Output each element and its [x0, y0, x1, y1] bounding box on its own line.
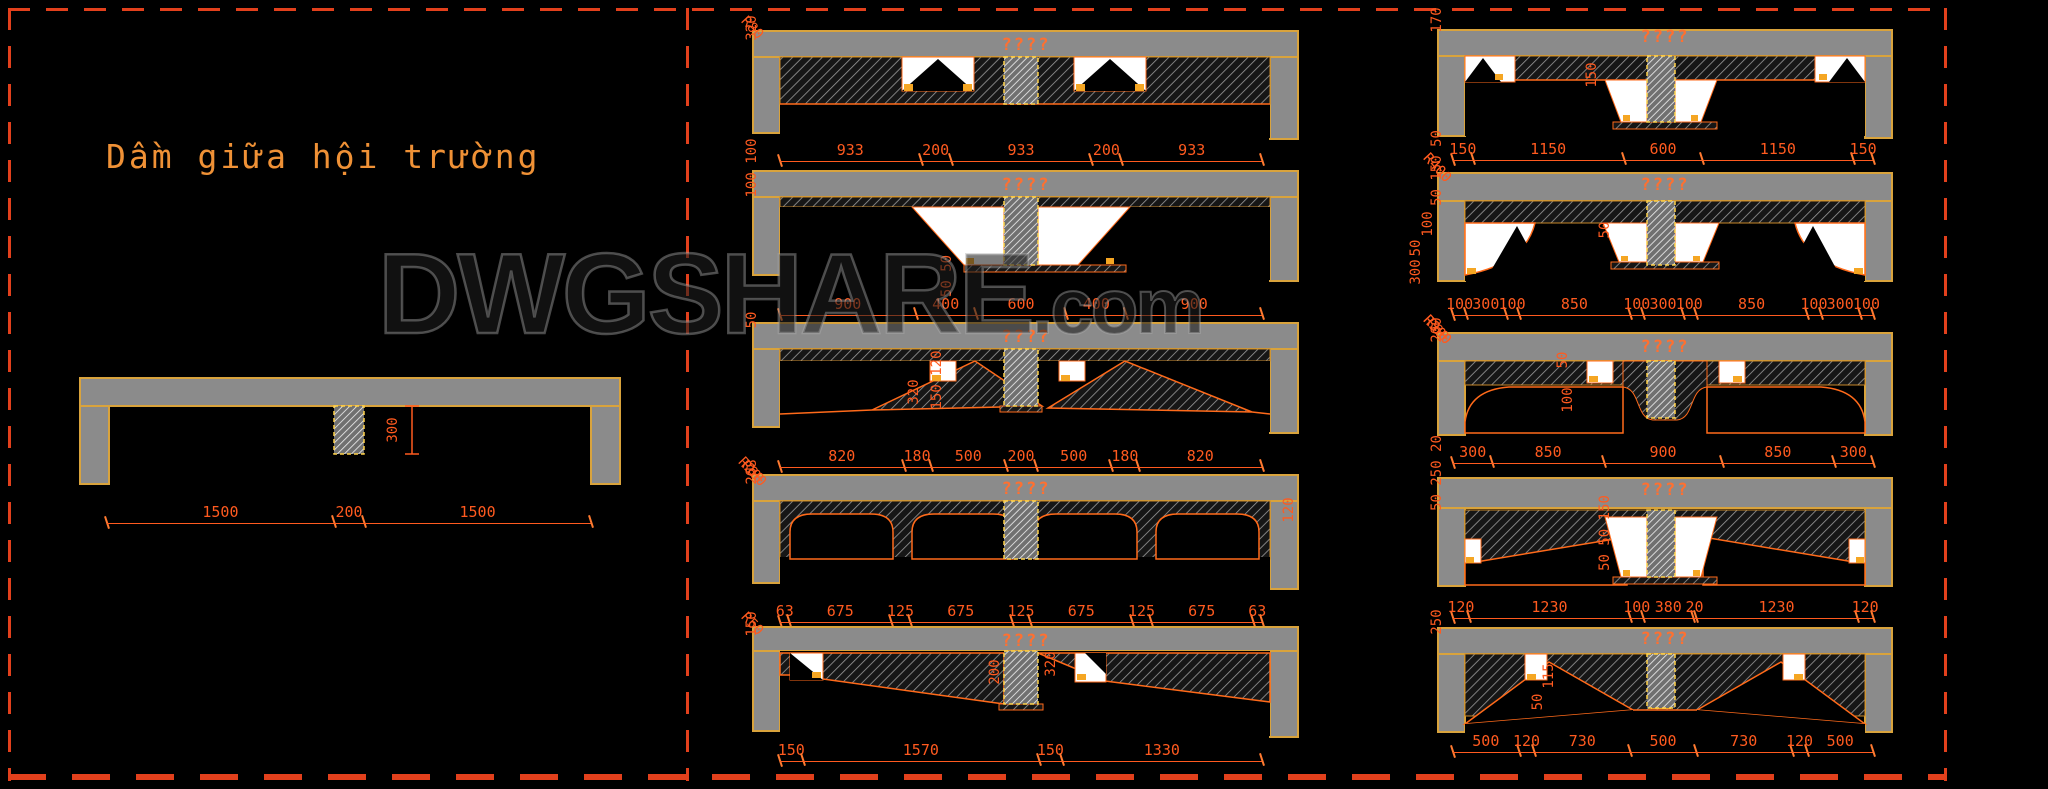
- dim-value: 100: [1807, 290, 1820, 316]
- vertical-dim-label: 120: [1282, 497, 1296, 522]
- dimension-row: 300850900850300: [1453, 438, 1873, 464]
- dimension-row: 820180500200500180820: [780, 442, 1262, 468]
- dim-value: 820: [1138, 442, 1262, 468]
- dim-value: 675: [1151, 597, 1253, 623]
- dim-value: 300: [1834, 438, 1873, 464]
- dim-value: 500: [931, 442, 1006, 468]
- dim-value: 200: [921, 136, 951, 162]
- dim-value: 933: [951, 136, 1092, 162]
- dim-value: 850: [1696, 290, 1808, 316]
- detail-section-r5: ???? 115 50 250 500120730500730120500: [1437, 622, 1893, 780]
- vertical-dim-label: 50: [745, 312, 759, 329]
- dim-value: 500: [1630, 727, 1696, 753]
- detail-caption: ????: [752, 175, 1300, 195]
- detail-section-m1: ???? 320 R80 933200933200933: [752, 28, 1300, 168]
- dim-value: 200: [1006, 442, 1036, 468]
- vertical-dim-label: 100: [1421, 211, 1435, 236]
- dim-value: 63: [1253, 597, 1262, 623]
- sheet-border-left: [8, 8, 11, 781]
- vertical-dim-label: 150 120: [930, 350, 944, 409]
- dim-value: 1150: [1473, 135, 1624, 161]
- dim-value: 730: [1534, 727, 1630, 753]
- detail-caption: ????: [1437, 629, 1893, 649]
- dim-value: 933: [1121, 136, 1262, 162]
- dim-value: 1570: [803, 736, 1039, 762]
- detail-section-m5: ???? 200 320 150 R50 15015701501330: [752, 624, 1300, 779]
- detail-caption: ????: [1437, 480, 1893, 500]
- dim-value: 820: [780, 442, 904, 468]
- dim-value: 1330: [1062, 736, 1262, 762]
- dim-value: 1150: [1702, 135, 1853, 161]
- dim-value: 150: [1853, 135, 1873, 161]
- vertical-dim-label: 50 250 20: [1430, 435, 1444, 511]
- dim-value: 850: [1722, 438, 1834, 464]
- detail-caption: ????: [1437, 27, 1893, 47]
- dim-value: 675: [910, 597, 1012, 623]
- dimension-row: 933200933200933: [780, 136, 1262, 162]
- dim-value: 100: [1453, 290, 1466, 316]
- detail-caption: ????: [752, 631, 1300, 651]
- dim-value: 180: [1111, 442, 1138, 468]
- dim-value: 120: [1453, 593, 1469, 619]
- dimension-row: 15002001500: [107, 498, 591, 524]
- dimension-row: 15015701501330: [780, 736, 1262, 762]
- dim-value: 500: [1036, 442, 1111, 468]
- dim-value: 900: [1604, 438, 1722, 464]
- detail-caption: ????: [752, 479, 1300, 499]
- dim-value: 730: [1696, 727, 1792, 753]
- detail-section-m4: ???? 120 268 R200 R80 636751256751256751…: [752, 472, 1300, 626]
- detail-section-r4: ???? 50 50 150 50 250 20 120123010038020…: [1437, 473, 1893, 625]
- dimension-row: 15011506001150150: [1453, 135, 1873, 161]
- dim-value: 200: [1091, 136, 1121, 162]
- dimension-row: 6367512567512567512567563: [780, 597, 1262, 623]
- dim-value: 125: [1132, 597, 1151, 623]
- vertical-dim-label: 50: [1531, 694, 1545, 711]
- dim-value: 200: [334, 498, 364, 524]
- dimension-row: 500120730500730120500: [1453, 727, 1873, 753]
- dim-value: 100: [1506, 290, 1519, 316]
- dim-value: 300: [1453, 438, 1492, 464]
- dim-value: 120: [1857, 593, 1873, 619]
- sheet-border-right: [1944, 8, 1947, 781]
- vertical-dim-label: 50 50 150: [1598, 495, 1612, 571]
- dim-value: 500: [1453, 727, 1519, 753]
- dim-value: 850: [1519, 290, 1631, 316]
- dimension-row: 100300100850100300100850100300100: [1453, 290, 1873, 316]
- dim-value: 850: [1492, 438, 1604, 464]
- vertical-dim-label: 320: [1044, 651, 1058, 676]
- dim-value: 1500: [364, 498, 591, 524]
- vertical-dim-label: 300: [1409, 259, 1423, 284]
- dim-value: 120: [1792, 727, 1808, 753]
- page-title: Dầm giữa hội trường: [106, 137, 541, 176]
- vertical-dim-label: 150: [1585, 62, 1599, 87]
- dim-value: 675: [789, 597, 891, 623]
- dim-value: 63: [780, 597, 789, 623]
- dim-value: 400: [1066, 290, 1126, 316]
- dim-value: 100: [1860, 290, 1873, 316]
- detail-section-r2: ???? 100 50 300 50 50 150 50 R400 R400 1…: [1437, 168, 1893, 320]
- dim-value: 100: [1630, 593, 1643, 619]
- dim-value: 1230: [1469, 593, 1630, 619]
- vertical-dim-label: 250: [1430, 609, 1444, 634]
- dim-value: 120: [1519, 727, 1535, 753]
- vertical-dim-label: 100 100: [745, 138, 759, 197]
- dim-value: 150: [1453, 135, 1473, 161]
- detail-caption: ????: [752, 35, 1300, 55]
- detail-section-m2: ???? 50 50 100 100 900400600400900: [752, 168, 1300, 320]
- vertical-dim-label: 200: [988, 659, 1002, 684]
- dim-value: 900: [1126, 290, 1262, 316]
- vertical-dim-label: 170: [1430, 7, 1444, 32]
- dim-value: 150: [1039, 736, 1062, 762]
- dim-value: 1500: [107, 498, 334, 524]
- dim-value: 100: [1630, 290, 1643, 316]
- left-elevation-drawing: 300 15002001500: [60, 370, 700, 545]
- vertical-dim-label: 50 50: [940, 255, 954, 297]
- dim-value: 675: [1030, 597, 1132, 623]
- dim-value: 125: [891, 597, 910, 623]
- dim-value: 180: [904, 442, 931, 468]
- dimension-row: 900400600400900: [780, 290, 1262, 316]
- detail-caption: ????: [752, 327, 1300, 347]
- dim-value: 100: [1683, 290, 1696, 316]
- dim-value: 600: [1624, 135, 1703, 161]
- dimension-row: 1201230100380201230120: [1453, 593, 1873, 619]
- vertical-dim-label: 50: [1409, 240, 1423, 257]
- dim-value: 1230: [1696, 593, 1857, 619]
- detail-caption: ????: [1437, 337, 1893, 357]
- detail-caption: ????: [1437, 175, 1893, 195]
- beam-depth-dim: 300: [386, 417, 400, 442]
- dim-value: 125: [1012, 597, 1031, 623]
- left-elevation-svg: [60, 370, 700, 496]
- dim-value: 150: [780, 736, 803, 762]
- vertical-dim-label: 320: [907, 379, 921, 404]
- dim-value: 933: [780, 136, 921, 162]
- vertical-dim-label: 115: [1542, 663, 1556, 688]
- vertical-dim-label: 50: [1598, 222, 1612, 239]
- dim-value: 900: [780, 290, 916, 316]
- detail-section-r1: ???? 150 170 15011506001150150: [1437, 20, 1893, 168]
- dim-value: 500: [1807, 727, 1873, 753]
- dim-value: 600: [976, 290, 1066, 316]
- detail-section-r3: ???? 50 100 200 R300 R300 R80 3008509008…: [1437, 330, 1893, 472]
- sheet-border-top: [8, 8, 1946, 11]
- vertical-dim-label: 100: [1561, 387, 1575, 412]
- vertical-dim-label: 50: [1556, 352, 1570, 369]
- detail-section-m3: ???? 320 150 120 50 82018050020050018082…: [752, 320, 1300, 472]
